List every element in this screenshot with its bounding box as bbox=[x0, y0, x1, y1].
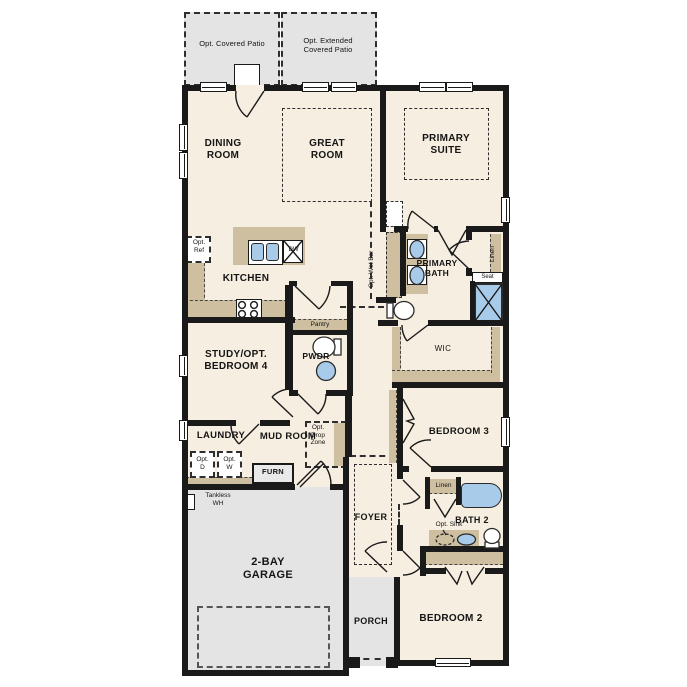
seat-label: Seat bbox=[472, 274, 503, 281]
door-swing bbox=[402, 325, 428, 341]
room-label-primary-suite: PRIMARY SUITE bbox=[404, 133, 488, 157]
range-burner-icon bbox=[239, 311, 246, 318]
opt-washer-label: Opt. W bbox=[217, 456, 242, 471]
door-swing bbox=[298, 394, 326, 414]
room-label-great: GREAT ROOM bbox=[286, 138, 368, 162]
toilet-bowl bbox=[484, 529, 500, 544]
powder-sink bbox=[317, 362, 336, 381]
linen-label-primary: Linen bbox=[489, 237, 500, 271]
floor-plan: Opt. Covered Patio Opt. Extended Covered… bbox=[0, 0, 687, 687]
shower-x-icon bbox=[475, 284, 502, 321]
vanity-sink bbox=[410, 241, 424, 259]
opt-sink-outline bbox=[436, 534, 454, 545]
door-swing bbox=[403, 480, 420, 504]
dishwasher-label: DW bbox=[284, 247, 303, 254]
linen-label-bath2: Linen bbox=[429, 482, 458, 490]
door-swing bbox=[410, 440, 431, 467]
pantry-label: Pantry bbox=[294, 321, 346, 329]
opt-ref-label: Opt. Ref bbox=[187, 239, 211, 254]
room-label-dining: DINING ROOM bbox=[182, 138, 264, 162]
patio-label: Opt. Covered Patio bbox=[186, 40, 278, 49]
opt-wet-bar-label: Opt. Wet Bar bbox=[368, 233, 380, 305]
room-label-bedroom2: BEDROOM 2 bbox=[401, 613, 501, 625]
doors-and-fixtures-layer bbox=[0, 0, 687, 687]
room-label-foyer: FOYER bbox=[349, 512, 393, 523]
room-label-porch: PORCH bbox=[349, 616, 393, 627]
room-label-bedroom3: BEDROOM 3 bbox=[409, 426, 509, 437]
toilet-bowl bbox=[394, 302, 414, 320]
door-swing bbox=[403, 551, 420, 575]
toilet-tank bbox=[387, 303, 393, 318]
closet-bifold-door bbox=[445, 567, 484, 584]
furnace-label: FURN bbox=[253, 468, 293, 477]
door-swing bbox=[236, 91, 264, 117]
bath2-sink bbox=[458, 534, 476, 545]
opt-drop-zone-label: Opt. Drop Zone bbox=[303, 424, 333, 447]
room-label-kitchen: KITCHEN bbox=[202, 273, 290, 285]
room-label-study: STUDY/OPT. BEDROOM 4 bbox=[185, 349, 287, 373]
room-label-powder: PWDR bbox=[294, 351, 338, 361]
opt-sink-label: Opt. Sink bbox=[426, 521, 472, 529]
door-swing bbox=[272, 389, 293, 417]
range-burner-icon bbox=[251, 302, 258, 309]
door-swing bbox=[297, 461, 331, 487]
range-burner-icon bbox=[239, 302, 246, 309]
opt-dryer-label: Opt. D bbox=[190, 456, 215, 471]
door-swing bbox=[295, 286, 330, 309]
room-label-garage: 2-BAY GARAGE bbox=[212, 556, 324, 582]
extended-patio-label: Opt. Extended Covered Patio bbox=[282, 37, 374, 55]
front-door-swing bbox=[365, 542, 387, 572]
door-swing bbox=[408, 211, 435, 229]
room-label-wic: WIC bbox=[418, 344, 468, 353]
tankless-wh-label: Tankless WH bbox=[197, 492, 239, 507]
range-burner-icon bbox=[251, 311, 258, 318]
room-label-primary-bath: PRIMARY BATH bbox=[405, 258, 469, 278]
